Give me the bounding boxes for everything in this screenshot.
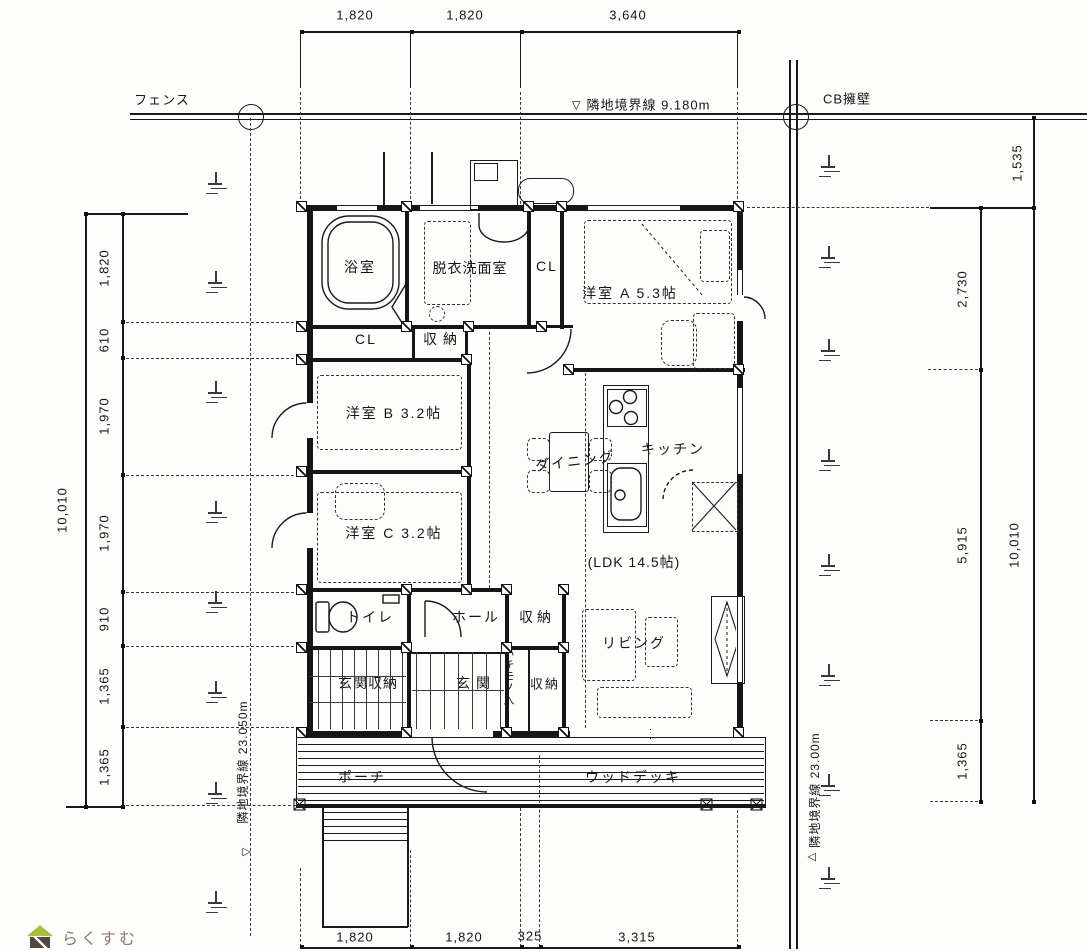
cb-wall-line <box>789 60 791 949</box>
ground-mark <box>206 702 218 703</box>
sofa-outline <box>582 609 636 681</box>
ext-line-dashed <box>126 358 304 359</box>
chair-outline <box>527 470 550 493</box>
dim-left-total: 10,010 <box>56 487 69 533</box>
washer-drain <box>429 306 445 322</box>
ground-mark <box>824 570 840 571</box>
storage-divider <box>528 650 530 731</box>
dim-dot <box>979 368 983 372</box>
wall-post <box>463 321 474 332</box>
ext-line <box>300 33 301 88</box>
tv-outline <box>645 617 678 667</box>
ground-mark <box>208 602 222 604</box>
ground-mark <box>824 465 840 466</box>
window-frame <box>337 205 377 206</box>
ext-line-dashed <box>747 207 929 208</box>
wall <box>467 358 471 480</box>
fence-label: フェンス <box>134 94 190 107</box>
floor-grid <box>310 702 406 703</box>
wall <box>467 470 471 592</box>
wall <box>307 325 539 329</box>
toilet-tank <box>316 602 329 632</box>
wall-post <box>401 321 412 332</box>
ext-line-dashed <box>737 810 738 947</box>
washing-machine <box>424 221 471 305</box>
dim-dot <box>520 945 524 949</box>
wall-post <box>401 584 412 595</box>
ext-line-dashed <box>126 322 304 323</box>
ground-mark <box>828 554 830 565</box>
dim-dot <box>84 212 88 216</box>
dim-left-5: 910 <box>98 607 111 632</box>
floor-grid <box>310 676 406 677</box>
dim-right-2: 5,915 <box>956 526 969 564</box>
ground-mark <box>828 664 830 675</box>
door-opening <box>736 295 744 321</box>
ext-line <box>520 33 521 88</box>
room-label-ldk: (LDK 14.5帖) <box>588 555 681 569</box>
ground-mark <box>828 867 830 878</box>
ext-line-dashed <box>126 475 304 476</box>
ground-mark <box>215 271 217 282</box>
wall-post <box>501 584 512 595</box>
dim-conn <box>85 213 188 215</box>
ground-mark <box>828 774 830 785</box>
ext-line-dashed <box>520 808 521 947</box>
wall-post <box>401 642 412 653</box>
wall <box>505 588 509 735</box>
ground-mark <box>211 517 227 518</box>
dim-right-3: 1,365 <box>956 742 969 780</box>
ground-mark <box>821 350 835 352</box>
wall-post <box>536 321 547 332</box>
ground-mark <box>819 685 831 686</box>
walkway-edge <box>407 807 409 927</box>
room-label-kitchen: キッチン <box>641 442 705 456</box>
ground-mark <box>819 360 831 361</box>
boundary-top-label: ▽ 隣地境界線 9.180m <box>572 99 710 112</box>
boundary-top-text: 隣地境界線 9.180m <box>586 99 710 112</box>
ground-mark <box>215 591 217 602</box>
wood-deck-outline <box>296 737 766 807</box>
ground-mark <box>821 460 835 462</box>
ground-mark <box>824 790 840 791</box>
table-outline <box>335 483 385 520</box>
ground-mark <box>206 803 218 804</box>
ground-mark <box>824 262 840 263</box>
sink-unit <box>607 463 647 527</box>
ground-mark <box>819 795 831 796</box>
ground-mark <box>206 193 218 194</box>
fence-line <box>130 119 1087 120</box>
window-frame <box>742 388 743 474</box>
ext-line-dashed <box>126 646 304 647</box>
floor-grid <box>412 690 504 691</box>
ext-line-dashed <box>928 369 978 370</box>
dim-bottom-1: 1,820 <box>336 931 374 944</box>
ground-mark <box>824 171 840 172</box>
floor-grid <box>330 650 331 729</box>
dim-dot <box>121 320 125 324</box>
dim-dot <box>979 800 983 804</box>
wall-post <box>733 364 744 375</box>
ground-mark <box>206 912 218 913</box>
ground-mark <box>211 907 227 908</box>
dim-line-top <box>300 31 738 33</box>
furniture-outline <box>693 313 735 369</box>
walkway-step <box>323 826 407 827</box>
dim-dot <box>121 644 125 648</box>
dim-top-3: 3,640 <box>609 9 647 22</box>
room-label-toilet: トイレ <box>346 610 394 624</box>
cb-wall-label: CB擁壁 <box>823 93 871 106</box>
living-slider-box <box>711 596 745 684</box>
dim-dot <box>1032 116 1036 120</box>
floor-grid <box>342 650 343 729</box>
ground-mark <box>215 381 217 392</box>
chair-outline <box>589 470 612 493</box>
dim-bottom-2: 1,820 <box>445 931 483 944</box>
ground-mark <box>206 612 218 613</box>
pillow-outline <box>700 230 730 282</box>
dim-dot <box>979 206 983 210</box>
triangle-down-icon: ▽ <box>572 99 580 112</box>
wall <box>307 470 470 474</box>
room-label-storage-hall: 収納 <box>519 610 555 624</box>
boundary-right-label: 隣地境界線 23.00m <box>809 732 821 847</box>
ground-mark <box>206 292 218 293</box>
wall-post <box>296 354 307 365</box>
floor-grid <box>402 650 403 729</box>
ground-mark <box>215 782 217 793</box>
dim-dot <box>539 945 543 949</box>
ground-mark <box>208 793 222 795</box>
logo-house-body-icon <box>30 937 50 948</box>
dim-dot <box>300 945 304 949</box>
wall-post <box>296 584 307 595</box>
wall-post <box>501 642 512 653</box>
dim-right-1: 2,730 <box>956 270 969 308</box>
ground-mark <box>828 449 830 460</box>
walkway-edge <box>322 926 408 928</box>
cb-wall-line <box>796 60 798 949</box>
ground-mark <box>819 267 831 268</box>
ground-mark <box>828 155 830 166</box>
wall-post <box>296 321 307 332</box>
floor-grid <box>318 650 319 729</box>
ext-line-dashed <box>300 868 301 947</box>
room-label-storage-top: 収納 <box>423 332 463 346</box>
ext-line-dashed <box>300 92 301 204</box>
ext-line <box>410 33 411 88</box>
wall <box>407 646 411 735</box>
ext-line-dashed <box>489 332 490 588</box>
chair-outline <box>527 438 550 461</box>
dim-right-total: 10,010 <box>1008 522 1021 568</box>
chair-outline <box>589 438 612 461</box>
ground-mark <box>824 883 840 884</box>
dim-dot <box>1032 206 1036 210</box>
ground-mark <box>821 257 835 259</box>
floor-grid <box>390 650 391 729</box>
ground-mark <box>211 397 227 398</box>
ground-mark <box>824 355 840 356</box>
room-label-entrance: 玄関 <box>456 676 496 690</box>
room-label-closet-a: CL <box>536 259 558 273</box>
dim-dot <box>737 945 741 949</box>
ground-mark <box>208 512 222 514</box>
ground-mark <box>819 176 831 177</box>
wall-post <box>523 201 534 212</box>
room-label-closet-b: CL <box>355 332 377 346</box>
pipe-line <box>383 152 385 208</box>
ground-mark <box>828 246 830 257</box>
boundary-right-triangle-icon: △ <box>807 853 818 861</box>
fence-line <box>130 113 1087 115</box>
dim-line-right-total <box>1033 118 1035 803</box>
ground-mark <box>819 575 831 576</box>
room-label-bath: 浴室 <box>344 260 376 274</box>
wall-post <box>556 201 567 212</box>
ground-mark <box>819 470 831 471</box>
ground-mark <box>208 392 222 394</box>
wall-post <box>558 642 569 653</box>
logo-text: らくすむ <box>62 932 138 948</box>
dim-line-bottom <box>300 947 738 949</box>
wall-post <box>401 201 412 212</box>
ground-mark <box>215 681 217 692</box>
ground-mark <box>215 172 217 183</box>
wash-basin <box>479 213 529 242</box>
wall <box>527 205 531 329</box>
toilet-paper-holder <box>383 595 399 603</box>
ground-mark <box>206 522 218 523</box>
wall-post <box>558 584 569 595</box>
dim-dot <box>121 473 125 477</box>
ext-line-dashed <box>737 92 738 204</box>
fridge-space <box>692 482 738 532</box>
dim-dot <box>300 30 304 34</box>
dim-dot <box>410 945 414 949</box>
window-frame <box>588 205 680 206</box>
wall-post <box>296 642 307 653</box>
ground-mark <box>211 798 227 799</box>
ext-line-dashed <box>126 805 296 806</box>
window-frame <box>420 210 478 211</box>
dim-top-2: 1,820 <box>446 9 484 22</box>
dim-right-top: 1,535 <box>1011 144 1024 182</box>
floor-grid <box>378 650 379 729</box>
wall <box>307 358 470 362</box>
door-arc-right <box>743 297 765 319</box>
ground-mark <box>211 697 227 698</box>
door-arc-room-b <box>272 403 307 438</box>
wall-post <box>501 727 512 738</box>
wall <box>527 325 573 328</box>
ground-mark <box>211 188 227 189</box>
wall <box>560 205 564 329</box>
ground-mark <box>821 565 835 567</box>
ground-mark <box>828 339 830 350</box>
ext-line-dashed <box>410 850 411 947</box>
room-label-entrance-storage: 玄関収納 <box>338 676 398 690</box>
ground-mark <box>821 166 835 168</box>
dim-line-left-total <box>85 214 87 807</box>
ext-line-dashed <box>930 720 978 721</box>
ext-line-dashed <box>410 92 411 204</box>
walkway-step <box>323 812 407 813</box>
boundary-corner-marker <box>238 104 264 130</box>
ext-line <box>737 33 738 88</box>
window-frame <box>588 210 680 211</box>
ground-mark <box>821 878 835 880</box>
pipe-line <box>431 152 433 208</box>
wall-post <box>296 201 307 212</box>
ground-mark <box>208 183 222 185</box>
walkway-step <box>323 840 407 841</box>
dim-dot <box>121 212 125 216</box>
walkway-edge <box>322 807 324 927</box>
floor-grid <box>354 650 355 729</box>
ground-mark <box>821 785 835 787</box>
dim-left-2: 610 <box>98 328 111 353</box>
stove <box>607 389 647 427</box>
ground-mark <box>819 888 831 889</box>
dim-dot <box>121 590 125 594</box>
walkway-step <box>323 819 407 820</box>
wall <box>562 588 566 735</box>
dim-left-4: 1,970 <box>98 514 111 552</box>
window-frame <box>337 210 377 211</box>
ground-mark <box>208 692 222 694</box>
dim-dot <box>121 725 125 729</box>
ground-mark <box>208 902 222 904</box>
door-opening <box>306 403 314 438</box>
room-label-storage-entrance: 収納 <box>530 678 560 691</box>
ground-mark <box>208 282 222 284</box>
dim-dot <box>1032 800 1036 804</box>
ground-mark <box>206 402 218 403</box>
wall-post <box>461 354 472 365</box>
logo-house-roof-icon <box>27 925 53 936</box>
dim-dot <box>520 30 524 34</box>
ground-mark <box>211 607 227 608</box>
wall-post <box>296 727 307 738</box>
dim-dot <box>121 805 125 809</box>
ground-mark <box>215 501 217 512</box>
floor-grid <box>366 650 367 729</box>
dim-left-7: 1,365 <box>98 748 111 786</box>
wall-post <box>733 201 744 212</box>
dim-conn <box>66 806 124 808</box>
wall-post <box>401 727 412 738</box>
dim-dot <box>737 30 741 34</box>
ext-line-dashed <box>930 801 978 802</box>
furniture-outline <box>661 320 697 366</box>
door-arc-kitchen <box>663 470 693 500</box>
dim-line-left <box>122 214 124 807</box>
wall-post <box>461 466 472 477</box>
dim-dot <box>84 805 88 809</box>
room-label-hall: ホール <box>452 610 500 624</box>
dim-line-right <box>980 208 982 803</box>
wall <box>307 646 410 650</box>
ground-mark <box>215 891 217 902</box>
wall <box>405 205 409 329</box>
dining-table <box>549 432 589 492</box>
wall <box>412 325 415 362</box>
window-frame <box>737 388 738 474</box>
wall-post <box>733 727 744 738</box>
rug-outline <box>597 687 692 718</box>
water-heater-panel <box>474 163 498 181</box>
walkway-step <box>323 833 407 834</box>
dim-left-1: 1,820 <box>98 249 111 287</box>
bed-outline <box>317 375 462 450</box>
wall <box>407 588 411 650</box>
dim-left-6: 1,365 <box>98 667 111 705</box>
dim-top-1: 1,820 <box>336 9 374 22</box>
door-arc-room-c <box>272 513 307 548</box>
wall-post <box>296 466 307 477</box>
dim-dot <box>410 30 414 34</box>
boundary-line-left <box>250 118 251 936</box>
floor-plan-canvas: フェンス ▽ 隣地境界線 9.180m CB擁壁 隣地境界線 23.050m ▽… <box>0 0 1087 951</box>
dim-dot <box>979 719 983 723</box>
wall-post <box>461 584 472 595</box>
ext-line-dashed <box>126 727 304 728</box>
wall-post <box>558 727 569 738</box>
dim-left-3: 1,970 <box>98 397 111 435</box>
ground-mark <box>211 287 227 288</box>
wall-post <box>563 364 574 375</box>
ground-mark <box>824 680 840 681</box>
dim-dot <box>121 356 125 360</box>
door-opening <box>306 513 314 548</box>
dim-bottom-4: 3,315 <box>618 931 656 944</box>
ground-mark <box>821 675 835 677</box>
